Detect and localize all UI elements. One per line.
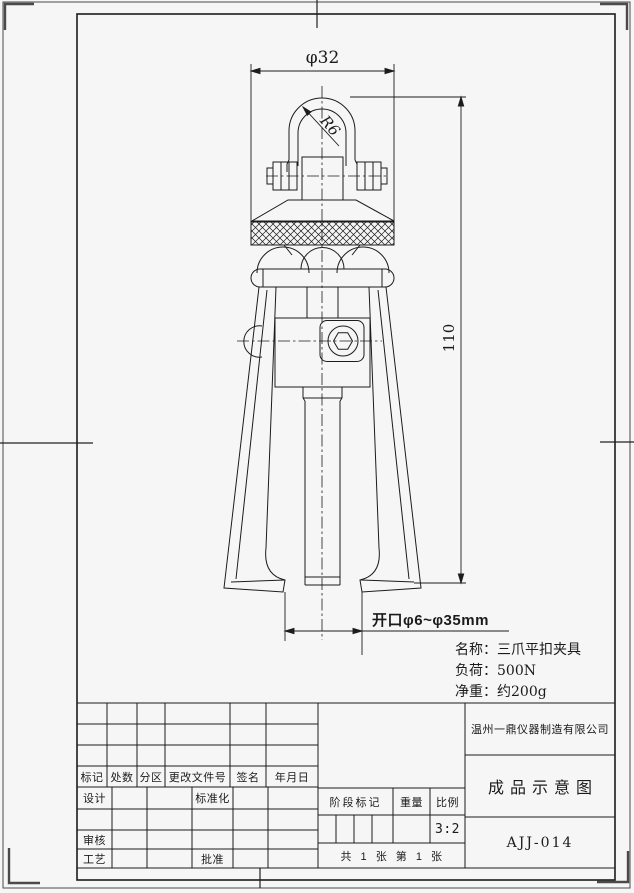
dim-label-diameter: φ32	[251, 48, 394, 68]
note-load: 负荷：500N	[455, 661, 581, 682]
dim-label-height: 110	[440, 318, 458, 358]
role-process: 工艺	[77, 849, 112, 868]
collar-ring	[251, 269, 394, 287]
drawing-number: AJJ-014	[465, 817, 615, 868]
header-change-doc-no: 更改文件号	[165, 766, 230, 787]
drawing-title: 成品示意图	[465, 755, 615, 817]
note-name: 名称：三爪平扣夹具	[455, 640, 581, 661]
role-approve: 批准	[192, 849, 233, 868]
header-count: 处数	[107, 766, 137, 787]
left-leg	[224, 287, 285, 592]
dim-diameter-32	[251, 64, 394, 222]
note-weight: 净重：约200g	[455, 682, 581, 703]
right-leg	[360, 287, 421, 592]
weight-header: 重量	[393, 788, 430, 815]
product-notes: 名称：三爪平扣夹具 负荷：500N 净重：约200g	[455, 640, 581, 703]
company-name: 温州一鼎仪器制造有限公司	[465, 703, 615, 755]
pivot-block	[302, 157, 343, 200]
center-rod	[303, 387, 342, 585]
header-date: 年月日	[266, 766, 318, 787]
stage-mark-header: 阶段标记	[318, 788, 393, 815]
cone-body	[252, 200, 394, 221]
upper-rod	[307, 287, 338, 318]
header-zone: 分区	[137, 766, 165, 787]
header-mark: 标记	[77, 766, 107, 787]
scale-value: 3:2	[430, 815, 465, 843]
dimension-lines	[251, 64, 509, 655]
header-signature: 签名	[230, 766, 266, 787]
sheet-count: 共 1 张 第 1 张	[318, 843, 465, 868]
role-design: 设计	[77, 787, 112, 809]
knurled-band	[251, 222, 394, 245]
clamp-drawing	[224, 86, 421, 640]
role-audit: 审核	[77, 830, 112, 849]
role-standardization: 标准化	[192, 787, 233, 809]
scale-header: 比例	[430, 788, 465, 815]
drawing-sheet: φ32 R6 110 开口φ6~φ35mm 名称：三爪平扣夹具 负荷：500N …	[0, 0, 634, 893]
dim-label-opening: 开口φ6~φ35mm	[372, 609, 489, 630]
